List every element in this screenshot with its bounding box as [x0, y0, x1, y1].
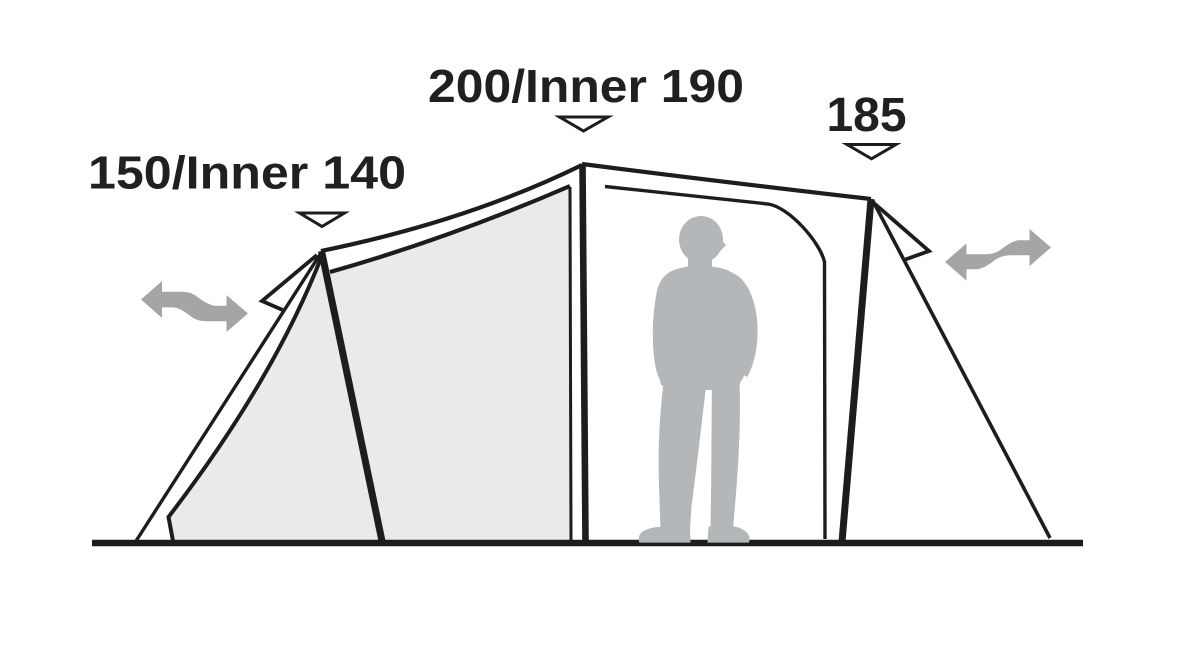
svg-text:200/Inner 190: 200/Inner 190	[428, 60, 744, 112]
svg-text:185: 185	[827, 89, 907, 142]
svg-text:150/Inner 140: 150/Inner 140	[88, 146, 406, 198]
